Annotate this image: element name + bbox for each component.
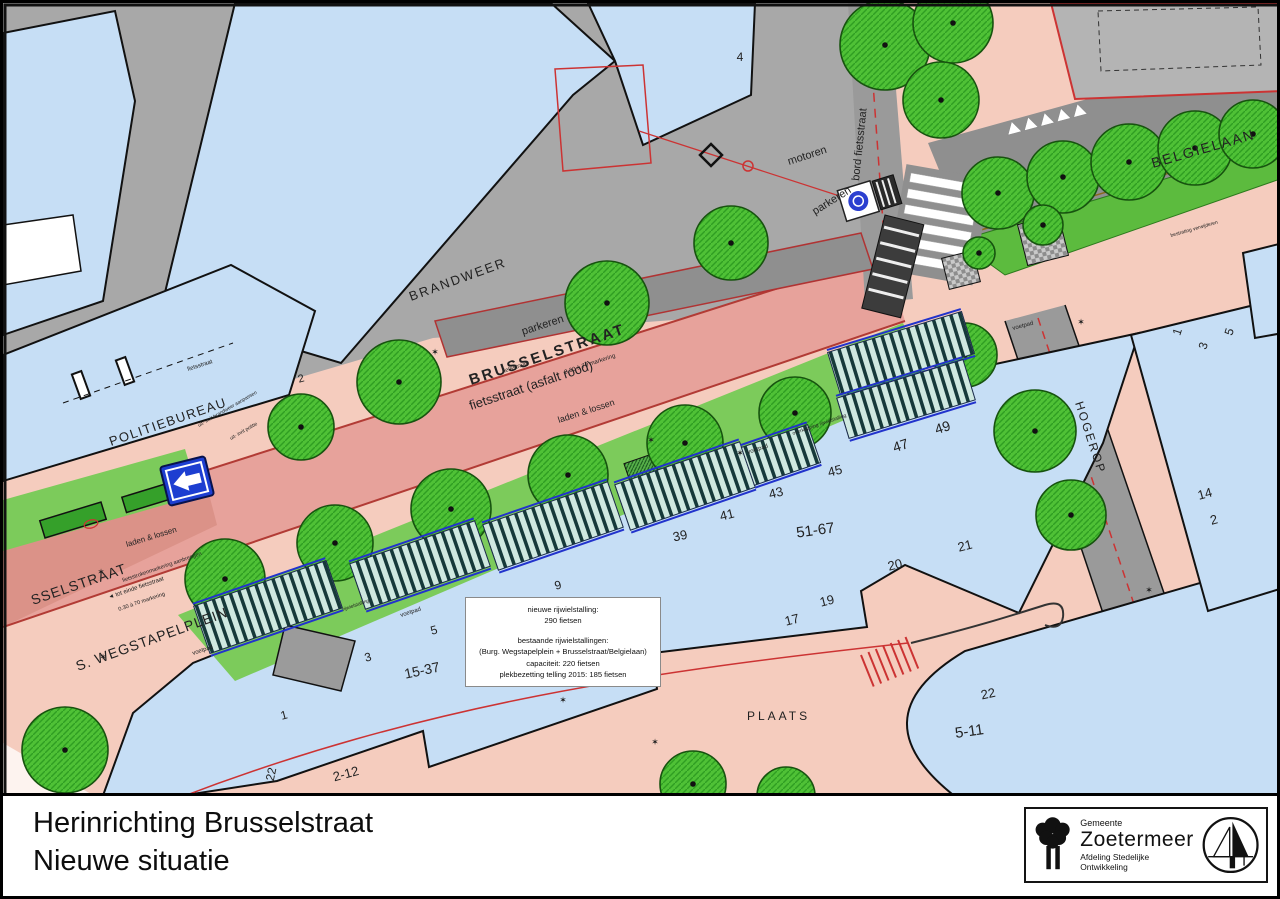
info-line: bestaande rijwielstallingen: bbox=[468, 635, 658, 646]
tree bbox=[1027, 141, 1099, 213]
red-marker-icon: ✶ bbox=[559, 695, 567, 705]
building-top-right bbox=[1051, 3, 1280, 99]
tree bbox=[357, 340, 441, 424]
tree bbox=[994, 390, 1076, 472]
tree bbox=[1023, 205, 1063, 245]
red-marker-icon: ✶ bbox=[431, 347, 439, 357]
logo-box: Gemeente Zoetermeer Afdeling Stedelijke … bbox=[1024, 807, 1268, 883]
tree bbox=[962, 157, 1034, 229]
info-line: plekbezetting telling 2015: 185 fietsen bbox=[468, 669, 658, 680]
logo-gemeente-label: Gemeente bbox=[1080, 818, 1194, 828]
drawing-sheet: ✶✶✶✶✶✶✶✶✶ BRANDWEERPOLITIEBUREAUBELGIELA… bbox=[0, 0, 1280, 899]
red-marker-icon: ✶ bbox=[1145, 585, 1153, 595]
info-line: 290 fietsen bbox=[468, 615, 658, 626]
stamp-logo bbox=[1201, 812, 1260, 878]
tree bbox=[1036, 480, 1106, 550]
tree bbox=[268, 394, 334, 460]
info-line: nieuwe rijwielstalling: bbox=[468, 604, 658, 615]
info-line: (Burg. Wegstapelplein + Brusselstraat/Be… bbox=[468, 646, 658, 657]
map-label: PLAATS bbox=[747, 709, 810, 723]
red-marker-icon: ✶ bbox=[647, 435, 655, 445]
house-number: 22 bbox=[979, 685, 996, 703]
logo-municipality-name: Zoetermeer bbox=[1080, 828, 1194, 852]
legend-info-box: nieuwe rijwielstalling: 290 fietsen best… bbox=[465, 597, 661, 687]
gemeente-tree-icon bbox=[1032, 814, 1073, 876]
info-gap bbox=[468, 627, 658, 635]
tree bbox=[694, 206, 768, 280]
tree bbox=[22, 707, 108, 793]
info-line: capaciteit: 220 fietsen bbox=[468, 658, 658, 669]
house-number: 4 bbox=[737, 50, 744, 64]
logo-text-group: Gemeente Zoetermeer Afdeling Stedelijke … bbox=[1080, 818, 1194, 872]
house-number: 39 bbox=[671, 527, 688, 545]
red-marker-icon: ✶ bbox=[736, 448, 744, 458]
title-block: Herinrichting Brusselstraat Nieuwe situa… bbox=[3, 793, 1277, 896]
tree bbox=[903, 62, 979, 138]
red-marker-icon: ✶ bbox=[651, 737, 659, 747]
logo-department-label: Afdeling Stedelijke Ontwikkeling bbox=[1080, 852, 1194, 872]
red-marker-icon: ✶ bbox=[1077, 317, 1085, 327]
tree bbox=[963, 237, 995, 269]
